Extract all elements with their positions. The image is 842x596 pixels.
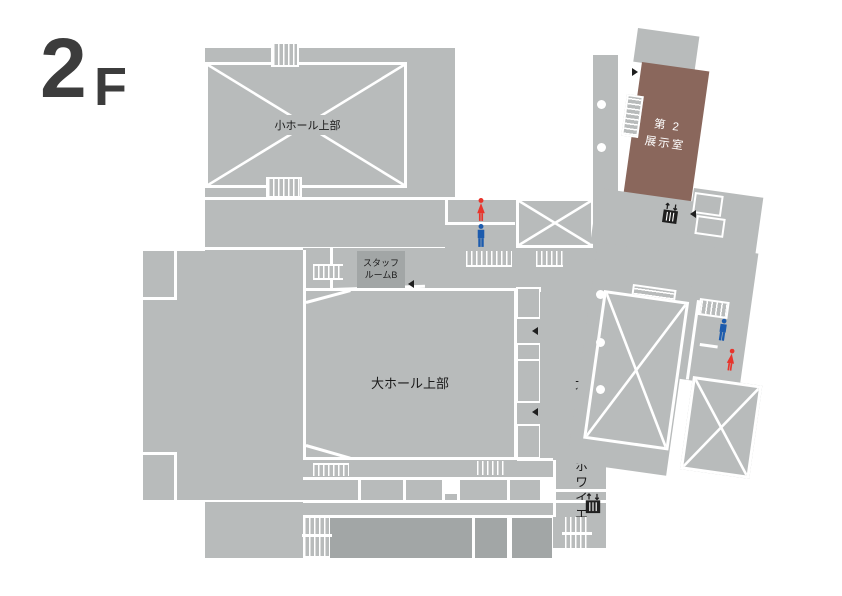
wall-line xyxy=(457,477,460,500)
restroom-female-icon xyxy=(475,198,487,222)
stairs-rail xyxy=(562,532,592,535)
wall-line xyxy=(507,477,510,500)
stairs-icon xyxy=(536,251,563,267)
stairs-rail xyxy=(302,534,332,537)
void-crossed-box xyxy=(516,198,594,248)
void-cross-icon xyxy=(683,379,759,475)
stairs-icon xyxy=(313,264,343,280)
direction-marker-icon xyxy=(528,327,538,335)
wall-line xyxy=(517,458,553,461)
direction-marker-icon xyxy=(632,68,642,76)
wall-line xyxy=(553,489,556,517)
wall-line xyxy=(403,477,406,500)
stairs-icon xyxy=(271,42,299,67)
column-icon xyxy=(596,385,605,394)
booth-box xyxy=(516,424,541,459)
floor-suffix: F xyxy=(94,60,127,114)
booth-box xyxy=(516,359,541,403)
left-wing-plate xyxy=(143,250,303,502)
roof-block xyxy=(512,518,552,558)
wall-line xyxy=(143,297,177,300)
roof-block xyxy=(330,518,472,558)
stairs-icon xyxy=(266,177,302,198)
direction-marker-icon xyxy=(404,280,414,288)
direction-marker-icon xyxy=(528,408,538,416)
light-well xyxy=(443,479,457,494)
light-well xyxy=(540,478,553,503)
void-crossed-box xyxy=(680,376,762,479)
void-cross-icon xyxy=(587,293,686,447)
elevator-icon xyxy=(585,493,601,519)
void-cross-icon xyxy=(519,201,591,245)
direction-marker-icon xyxy=(686,210,696,218)
roof-block xyxy=(475,518,507,558)
booth-box xyxy=(516,287,541,319)
bottom-left-block xyxy=(205,502,303,558)
wall-line xyxy=(143,452,177,455)
wing-room-box xyxy=(694,215,725,238)
column-icon xyxy=(597,143,606,152)
main-hall-label: 大ホール上部 xyxy=(355,372,465,392)
small-hall-label: 小ホール上部 xyxy=(240,115,375,135)
wing-room-box xyxy=(692,192,724,217)
staff-room: スタッフルームB xyxy=(357,251,405,288)
stairs-icon xyxy=(477,461,504,475)
floor-number: 2 xyxy=(40,26,87,110)
floor-map-canvas: 2 F 小ホール上部 スタッフルームB xyxy=(0,0,842,596)
stairs-icon xyxy=(313,463,349,476)
stairs-icon xyxy=(304,518,330,556)
column-icon xyxy=(596,290,605,299)
wall-line xyxy=(174,453,177,502)
wall-line xyxy=(358,477,361,500)
wall-line xyxy=(303,477,553,480)
restroom-male-icon xyxy=(475,224,487,248)
column-icon xyxy=(597,100,606,109)
stairs-icon xyxy=(466,251,512,267)
column-icon xyxy=(596,338,605,347)
wall-line xyxy=(174,250,177,300)
wall-line xyxy=(553,489,606,492)
